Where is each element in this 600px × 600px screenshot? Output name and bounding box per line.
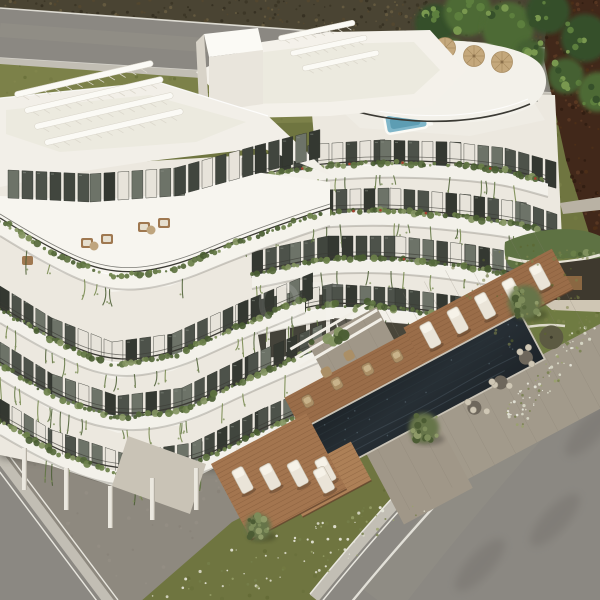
scene-canvas: OT [0, 0, 600, 600]
architectural-render: OT [0, 0, 600, 600]
watermark: OT [256, 270, 355, 337]
